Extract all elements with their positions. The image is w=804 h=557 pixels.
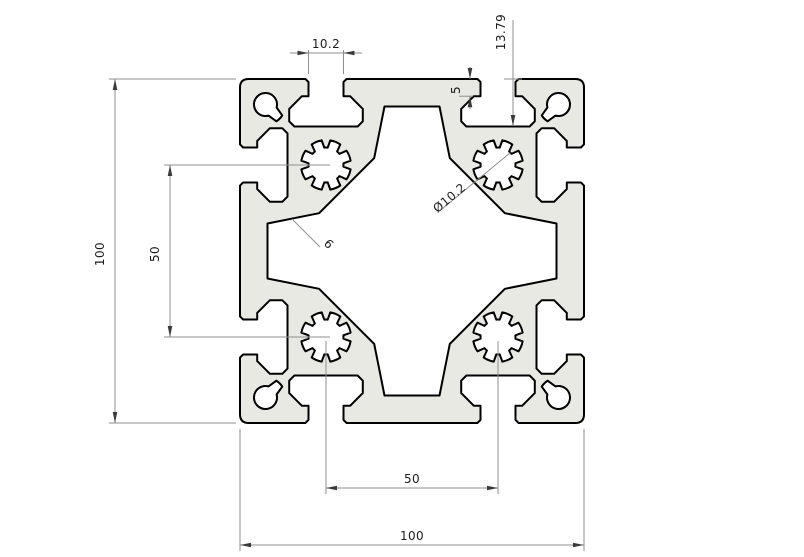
dimension-arrowhead: [168, 165, 173, 176]
dimension-arrowhead: [168, 326, 173, 337]
dim-lip-depth-label: 5: [449, 86, 463, 94]
dimension-arrowhead: [468, 68, 473, 79]
dimension-arrowhead: [487, 486, 498, 491]
drawing-canvas: 10.2 13.79 5 100 50 Ø10.2 6 50 100: [0, 0, 804, 557]
dim-overall-width-label: 100: [400, 529, 424, 543]
dimension-arrowhead: [240, 543, 251, 548]
dimension-arrowhead: [113, 412, 118, 423]
dimension-arrowhead: [113, 79, 118, 90]
dim-overall-height-label: 100: [93, 242, 107, 266]
dim-hole-spacing-horizontal-label: 50: [404, 472, 420, 486]
dim-slot-depth-label: 13.79: [494, 14, 508, 50]
dim-hole-spacing-vertical-label: 50: [148, 246, 162, 262]
dim-slot-opening-label: 10.2: [312, 37, 340, 51]
dimension-arrowhead: [511, 115, 516, 126]
dimension-arrowhead: [573, 543, 584, 548]
extrusion-profile-drawing: 10.2 13.79 5 100 50 Ø10.2 6 50 100: [0, 0, 804, 557]
dimension-arrowhead: [344, 51, 355, 56]
dimension-arrowhead: [326, 486, 337, 491]
dimension-arrowhead: [298, 51, 309, 56]
